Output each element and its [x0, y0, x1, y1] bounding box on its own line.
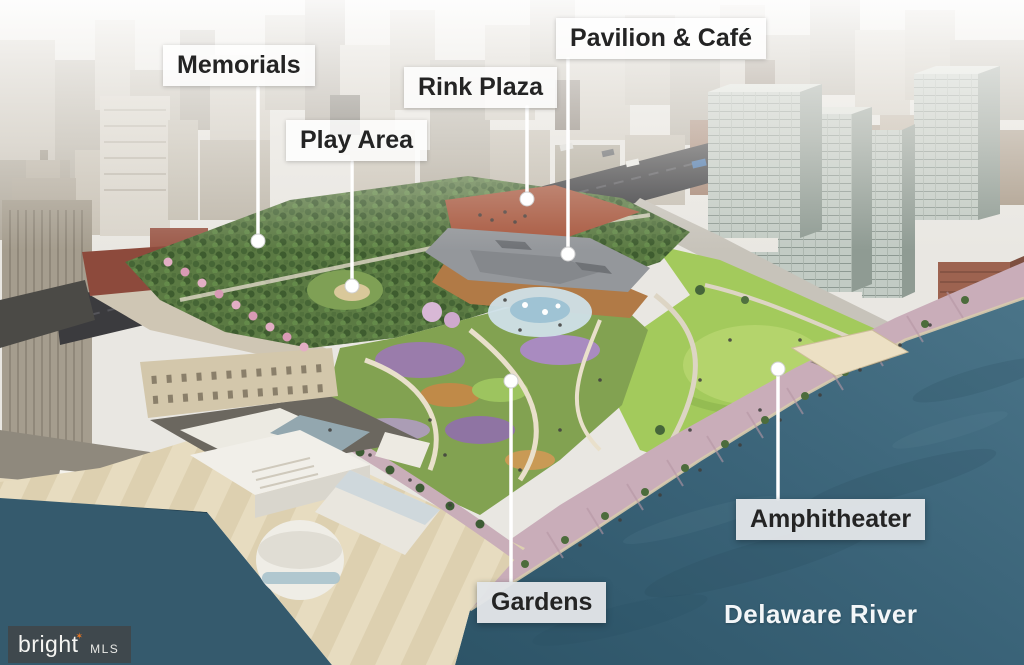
- river-name-label: Delaware River: [724, 601, 917, 627]
- waterfront-park-rendering: Memorials Play Area Rink Plaza Pavilion …: [0, 0, 1024, 665]
- leader-dot-amphitheater: [771, 362, 785, 376]
- leader-dot-memorials: [251, 234, 265, 248]
- callout-rink-plaza: Rink Plaza: [404, 67, 557, 108]
- callout-play-area: Play Area: [286, 120, 427, 161]
- callout-gardens: Gardens: [477, 582, 606, 623]
- watermark-brand-text: bright: [18, 633, 79, 656]
- fountain: [488, 287, 592, 337]
- leader-dot-gardens: [504, 374, 518, 388]
- leader-dot-play-area: [345, 279, 359, 293]
- callout-amphitheater: Amphitheater: [736, 499, 925, 540]
- leader-dot-rink-plaza: [520, 192, 534, 206]
- brightmls-watermark: bright ✶ MLS: [8, 626, 131, 663]
- haze-overlay: [0, 0, 1024, 250]
- leader-dot-pavilion: [561, 247, 575, 261]
- callout-memorials: Memorials: [163, 45, 315, 86]
- callout-pavilion-cafe: Pavilion & Café: [556, 18, 766, 59]
- watermark-star-icon: ✶: [76, 632, 84, 641]
- watermark-suffix-text: MLS: [90, 643, 119, 655]
